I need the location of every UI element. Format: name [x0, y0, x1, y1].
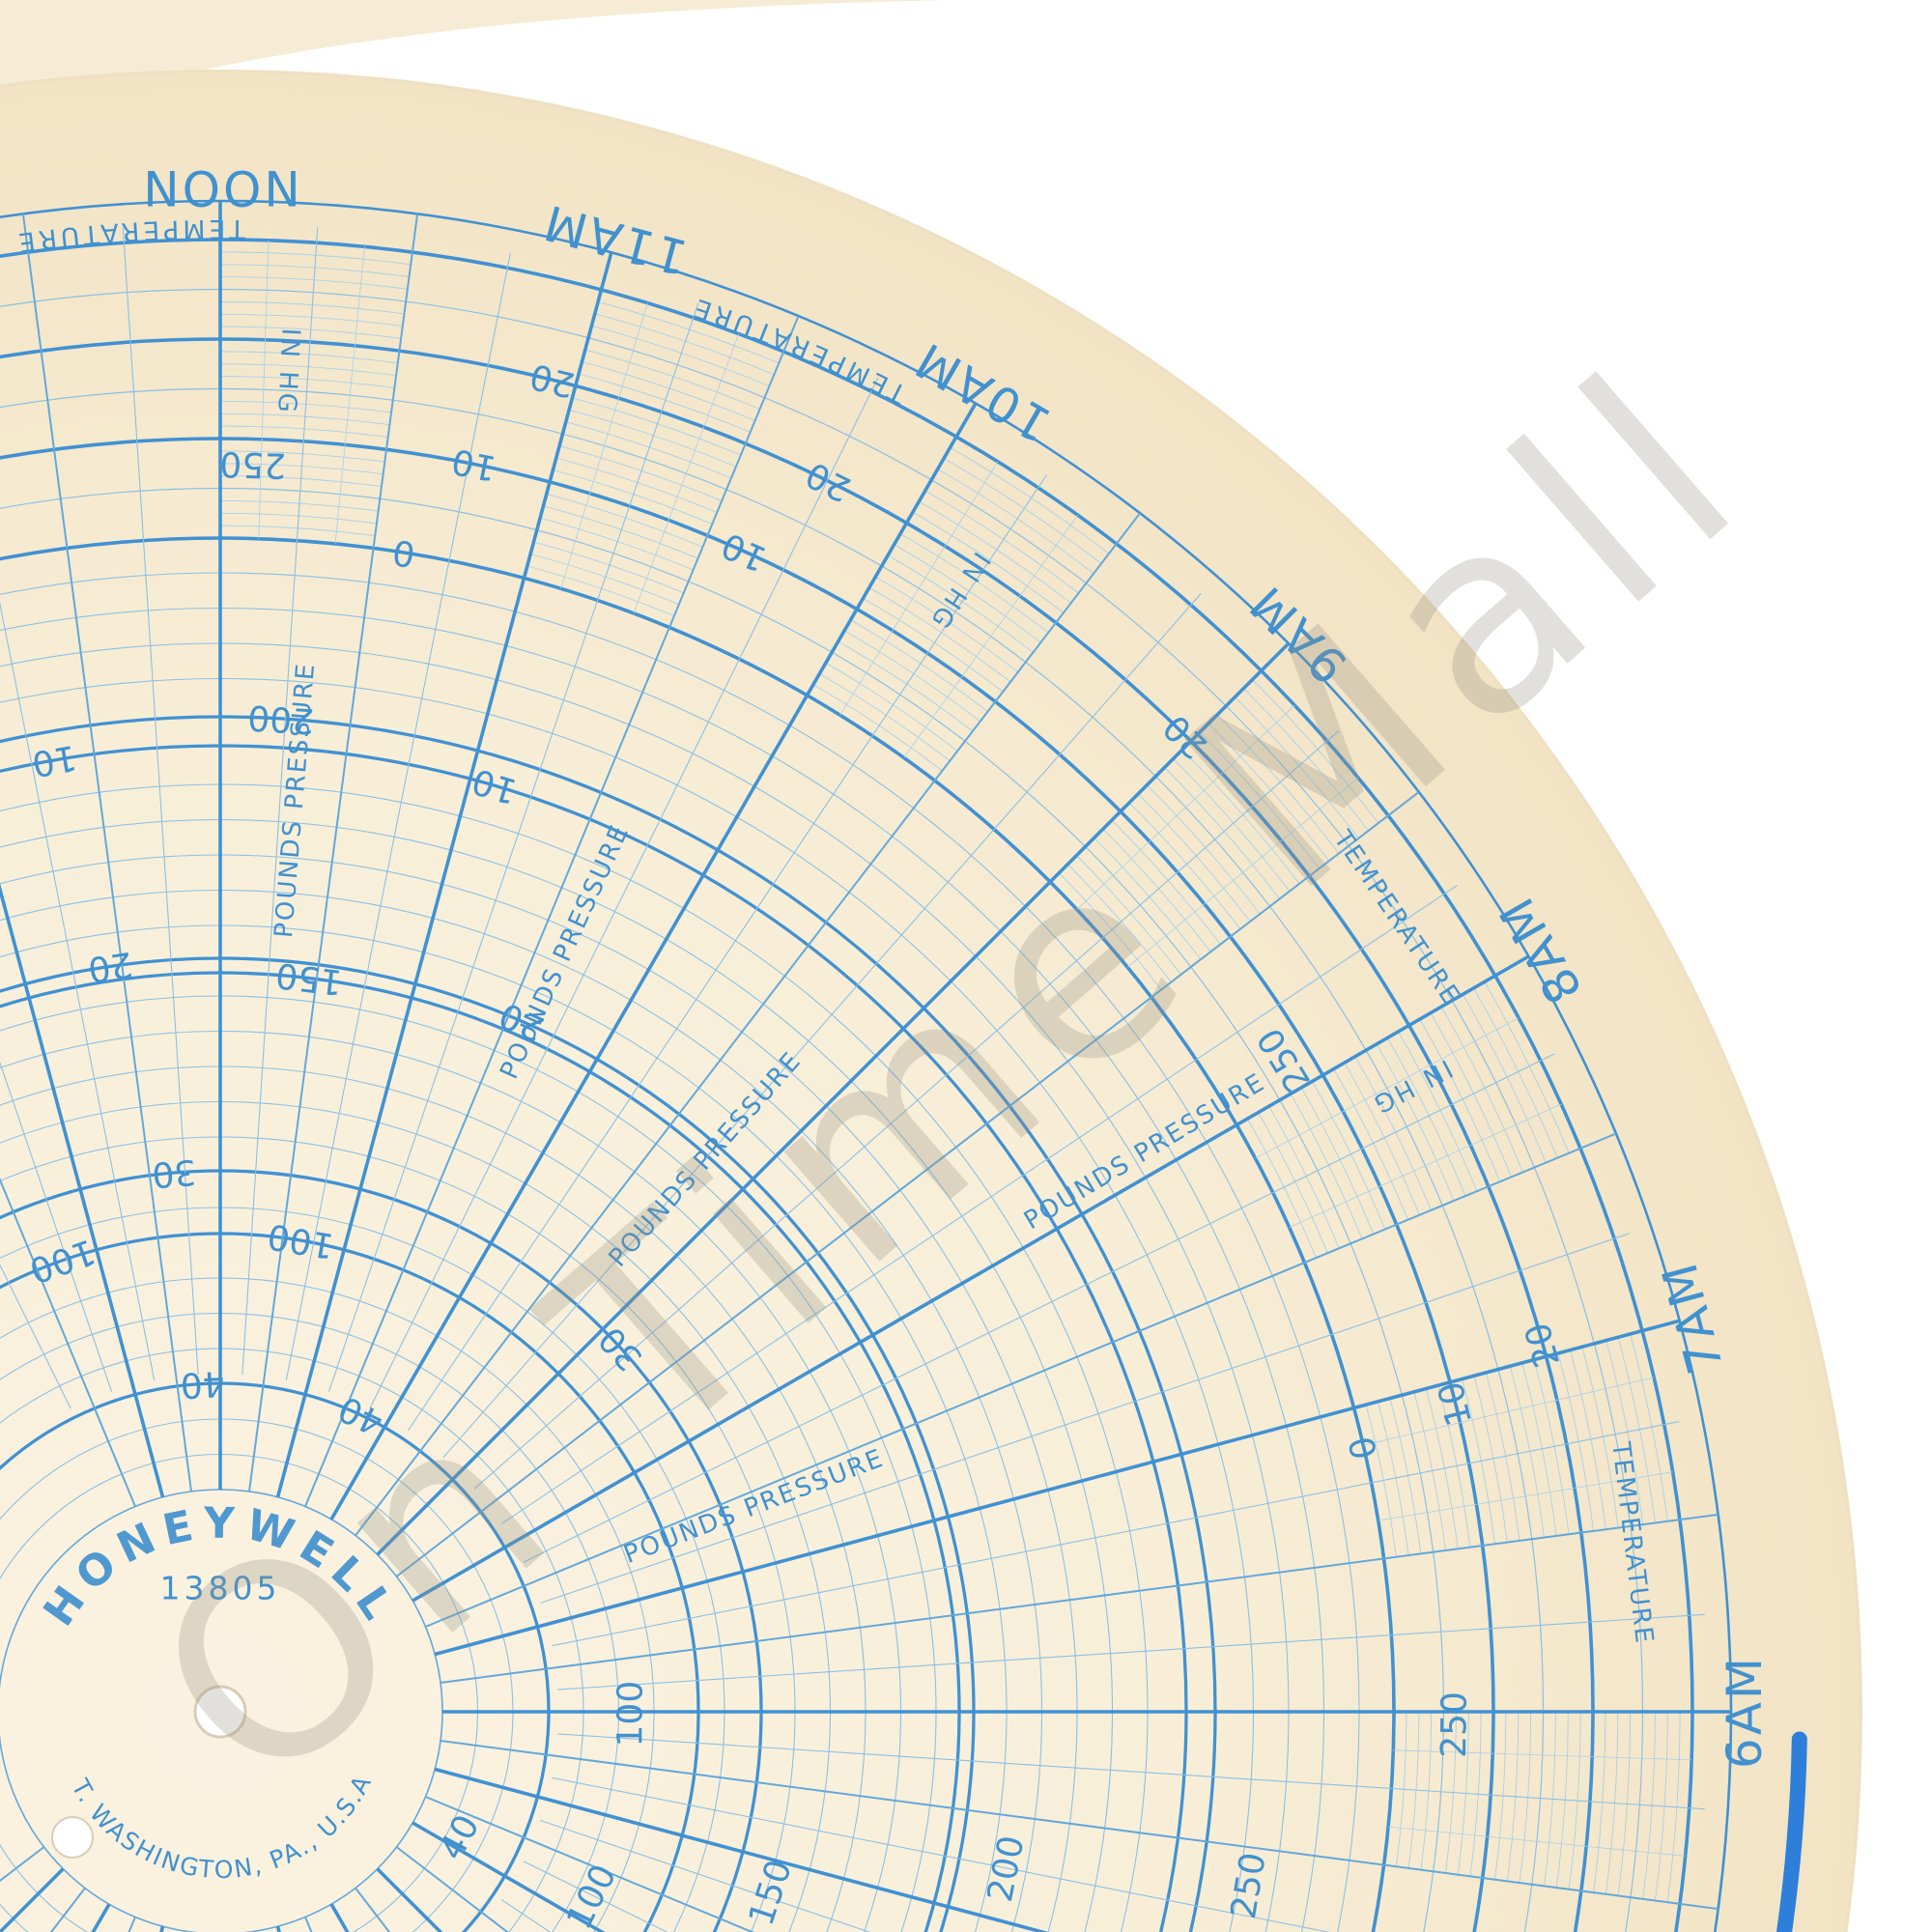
scale-label: 100	[611, 1681, 650, 1747]
screenshot-root: 1001020304025020015010001020102040102020…	[0, 0, 1932, 1932]
scale-label: 40	[180, 1363, 226, 1405]
scale-label: 30	[151, 1151, 198, 1195]
scale-label: 10	[29, 737, 79, 783]
scale-label: 150	[273, 954, 344, 1002]
scale-label: 250	[1435, 1691, 1475, 1758]
chart-recorder-paper-photo: 1001020304025020015010001020102040102020…	[0, 0, 1932, 1932]
scale-label: 250	[219, 443, 287, 485]
time-label-noon: NOON	[140, 159, 300, 215]
time-label-6am: 6AM	[1717, 1655, 1773, 1769]
drive-hole	[52, 1817, 93, 1858]
in-hg-legend: IN HG	[271, 327, 305, 415]
scale-label: 20	[85, 944, 134, 989]
